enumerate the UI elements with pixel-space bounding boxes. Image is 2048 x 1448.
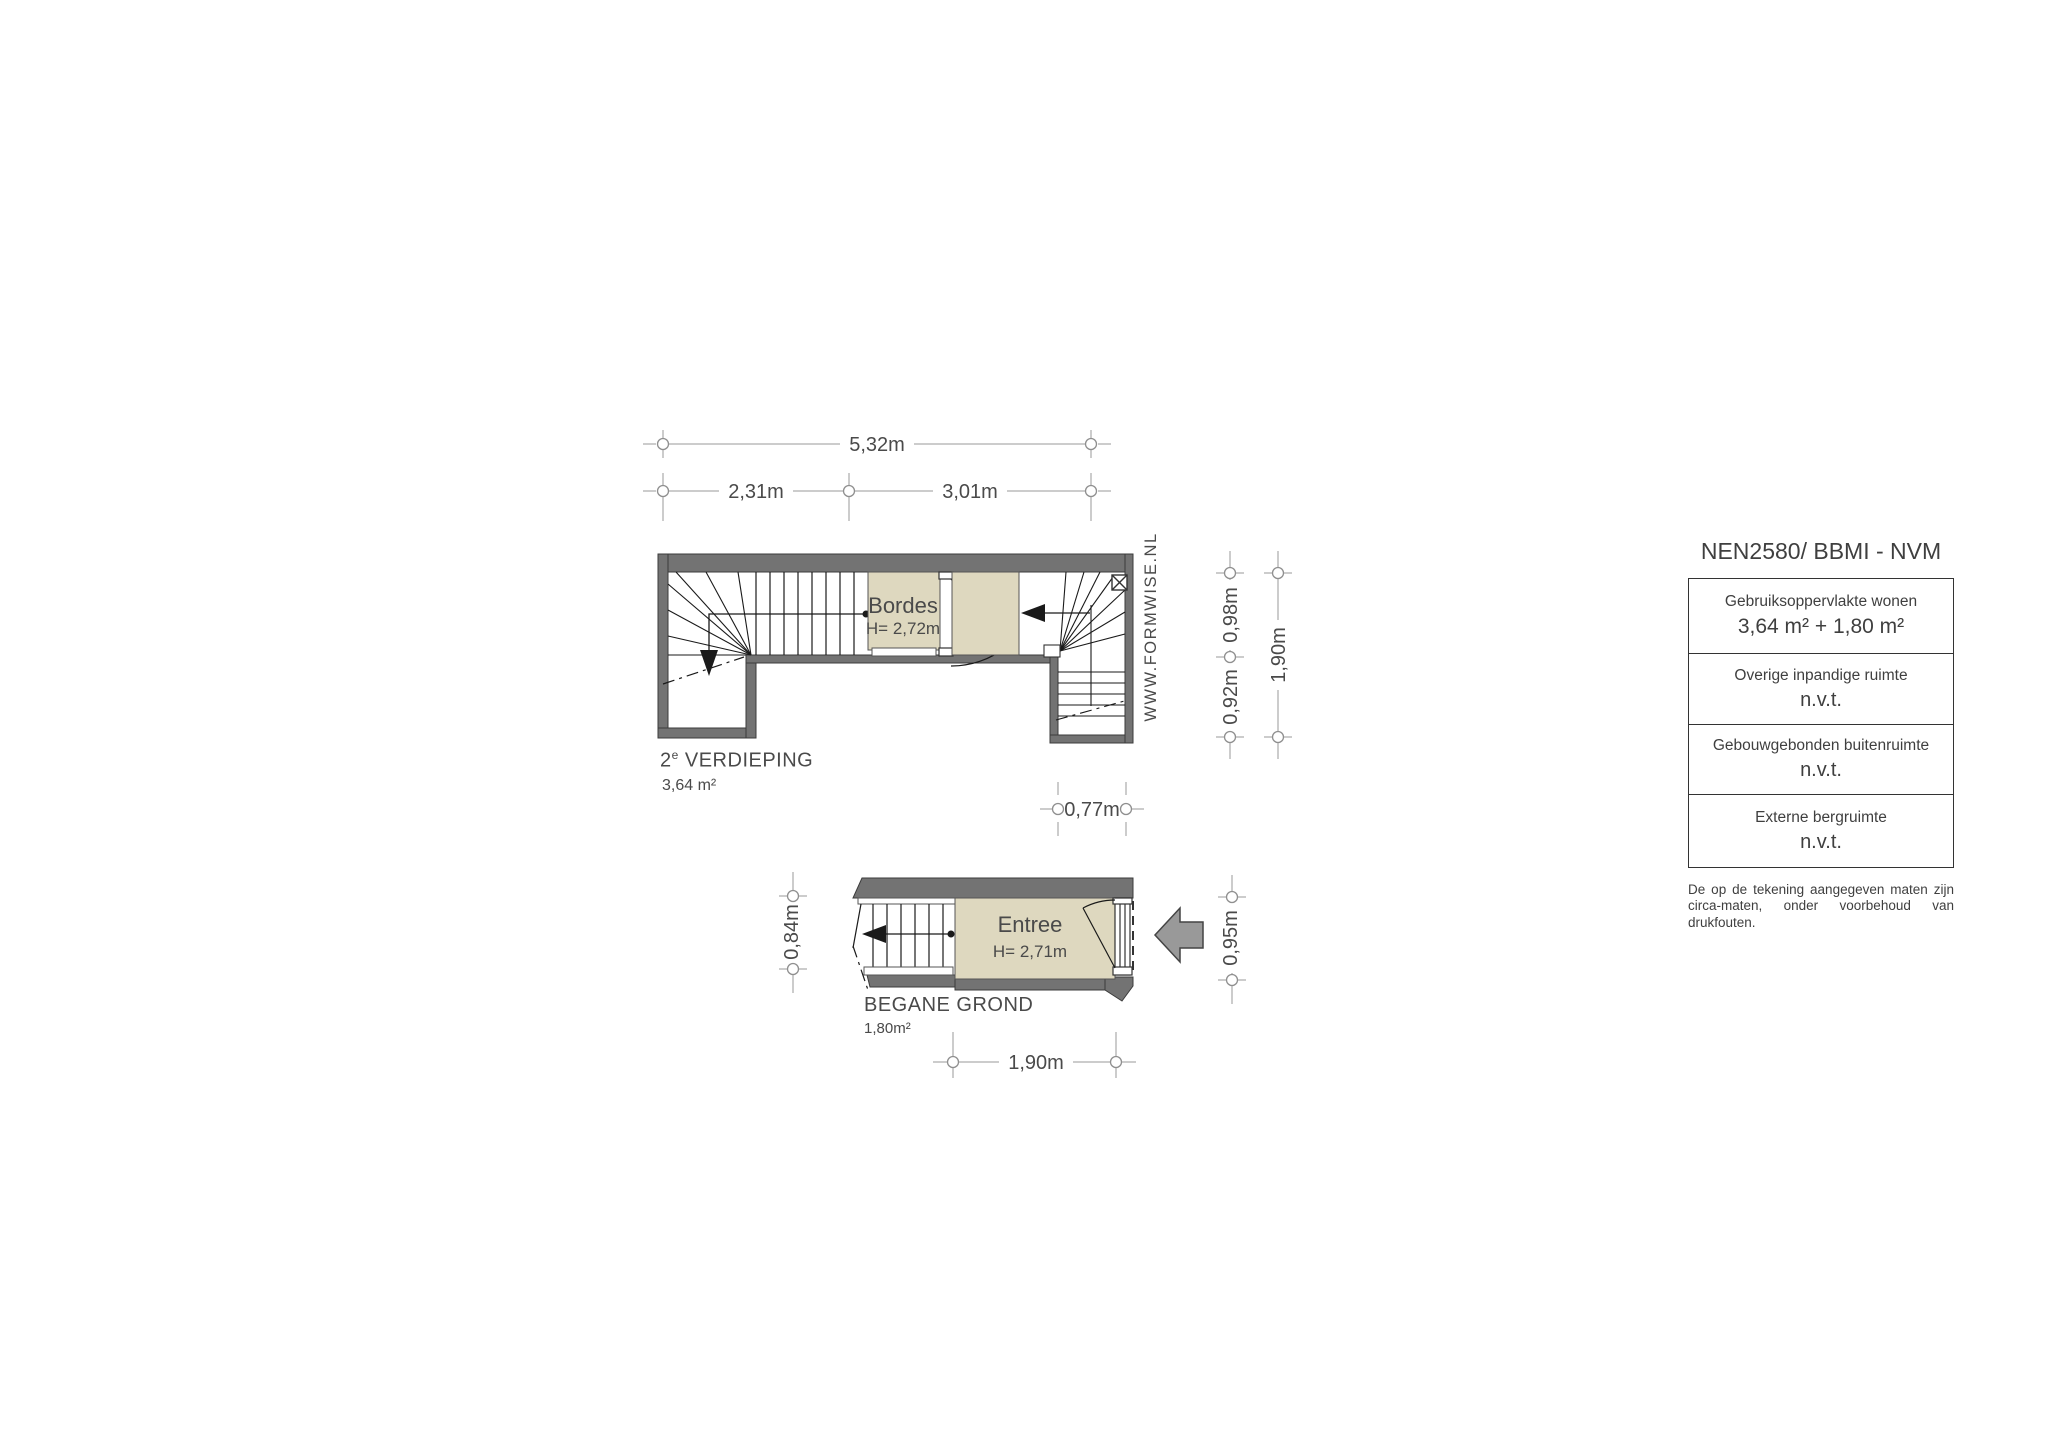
entree-room-label: Entree [998,912,1063,937]
watermark-text: WWW.FORMWISE.NL [1142,532,1160,721]
dim-lower-right: 0,95m [1220,910,1242,966]
entree-room-height: H= 2,71m [993,942,1067,961]
upper-right-landing [952,572,1019,655]
legend-title: NEN2580/ BBMI - NVM [1688,538,1954,565]
bordes-room-label: Bordes [868,593,938,618]
bordes-room-height: H= 2,72m [866,619,940,638]
lower-step-strip-bottom [864,967,953,975]
upper-plan-title-number: 2 [660,750,672,772]
legend-box: Gebruiksoppervlakte wonen 3,64 m² + 1,80… [1688,578,1954,868]
legend-disclaimer: De op de tekening aangegeven maten zijn … [1688,882,1954,931]
upper-plan-title-sup: e [672,748,679,762]
dim-right-top: 0,98m [1220,587,1242,643]
bordes-threshold [872,648,936,656]
dim-bottom-077: 0,77m [1064,799,1120,821]
legend-row-value: n.v.t. [1800,689,1842,712]
upper-plan-title: 2e VERDIEPING [660,748,813,773]
upper-floor-plan: Bordes H= 2,72m [658,532,1160,743]
dim-right-bottom: 0,92m [1220,669,1242,725]
lower-walking-line [862,925,955,943]
legend-row-value: n.v.t. [1800,759,1842,782]
lower-plan-area: 1,80m² [864,1020,911,1037]
entree-room [955,898,1115,979]
upper-walking-line-left [663,611,870,685]
dim-right-total: 1,90m [1268,627,1290,683]
legend-row-label: Gebruiksoppervlakte wonen [1725,593,1917,611]
dim-total-width: 5,32m [849,434,905,456]
lower-step-strip-top [858,898,955,904]
legend-row-externe: Externe bergruimte n.v.t. [1689,794,1953,867]
entrance-arrow-icon [1155,908,1203,962]
lower-floor-plan: Entree H= 2,71m [853,878,1203,1001]
upper-plan-area: 3,64 m² [662,777,716,795]
dim-left-width: 2,31m [728,481,784,503]
legend-row-gebruiksoppervlakte: Gebruiksoppervlakte wonen 3,64 m² + 1,80… [1689,579,1953,653]
lower-plan-title: BEGANE GROND [864,994,1033,1017]
dim-lower-left: 0,84m [781,904,803,960]
legend-row-overige: Overige inpandige ruimte n.v.t. [1689,653,1953,724]
legend-row-value: 3,64 m² + 1,80 m² [1738,615,1904,639]
floorplan-page: Bordes H= 2,72m [0,0,2048,1448]
column-x-icon [1112,575,1127,590]
legend-row-label: Externe bergruimte [1755,809,1887,827]
dim-right-width: 3,01m [942,481,998,503]
legend-row-value: n.v.t. [1800,831,1842,854]
upper-plan-title-text: VERDIEPING [685,750,813,772]
legend-row-gebouwgebonden: Gebouwgebonden buitenruimte n.v.t. [1689,724,1953,794]
legend-row-label: Gebouwgebonden buitenruimte [1713,737,1929,755]
legend-row-label: Overige inpandige ruimte [1734,667,1907,685]
dim-lower-bottom: 1,90m [1008,1052,1064,1074]
